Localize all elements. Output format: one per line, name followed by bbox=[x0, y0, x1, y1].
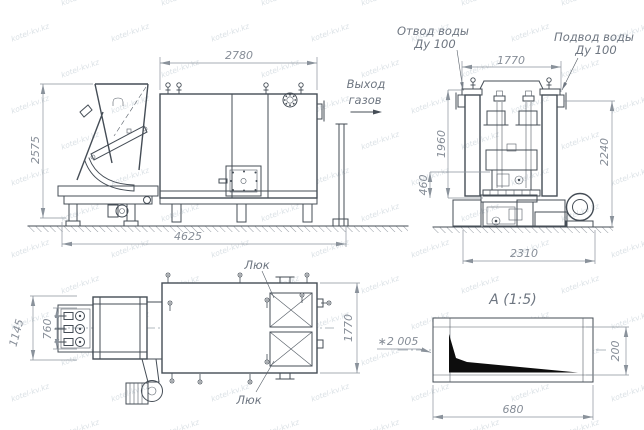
boiler-body-front bbox=[456, 78, 566, 196]
technical-drawing: 2780 bbox=[0, 0, 644, 430]
dim-460: 460 bbox=[417, 172, 490, 198]
dim-2240: 2240 bbox=[564, 101, 615, 226]
dim-1145-text: 1145 bbox=[7, 318, 27, 348]
side-view: 2780 bbox=[28, 49, 408, 247]
feeder-shafts bbox=[55, 312, 85, 347]
fan-blower bbox=[535, 194, 594, 228]
water-inlet-text-1: Подвод воды bbox=[554, 30, 634, 44]
dim-1770-front-text: 1770 bbox=[497, 54, 525, 67]
dim-1770-front: 1770 bbox=[462, 54, 561, 92]
plan-view: Люк Люк bbox=[7, 258, 360, 407]
dim-460-text: 460 bbox=[417, 175, 430, 196]
gas-flow-arrow-icon bbox=[351, 110, 382, 115]
dim-2310-text: 2310 bbox=[510, 247, 538, 260]
water-outlet-text-1: Отвод воды bbox=[397, 24, 469, 38]
dim-200-text: 200 bbox=[609, 341, 622, 362]
feeder-plan bbox=[55, 297, 163, 404]
water-inlet-label: Подвод воды Ду 100 bbox=[554, 30, 634, 90]
front-view: Отвод воды Ду 100 Подвод воды Ду 100 177… bbox=[397, 24, 634, 264]
dim-2780: 2780 bbox=[160, 49, 317, 90]
dim-4625-text: 4625 bbox=[174, 230, 202, 243]
dim-680-text: 680 bbox=[503, 403, 524, 416]
dim-2780-text: 2780 bbox=[225, 49, 253, 62]
dim-1960-text: 1960 bbox=[435, 130, 448, 158]
dim-2310: 2310 bbox=[463, 230, 595, 264]
ground-front bbox=[433, 227, 613, 233]
foundation-front bbox=[453, 195, 565, 226]
dim-2575: 2575 bbox=[29, 84, 93, 218]
feeder-frame bbox=[58, 186, 158, 226]
drawing-canvas: kotel-kv.kzkotel-kv.kzkotel-kv.kzkotel-k… bbox=[0, 0, 644, 430]
water-outlet-text-2: Ду 100 bbox=[413, 37, 455, 51]
ground-side bbox=[28, 226, 408, 232]
dim-2005-text: ∗2 005 bbox=[378, 335, 419, 348]
dim-2575-text: 2575 bbox=[29, 136, 42, 164]
gas-duct bbox=[317, 101, 348, 226]
gas-outlet-text-1: Выход bbox=[347, 77, 386, 91]
dim-1960: 1960 bbox=[435, 90, 483, 198]
gas-outlet-label: Выход газов bbox=[347, 77, 386, 115]
fuel-hopper bbox=[77, 84, 148, 191]
hatch-bottom-text: Люк bbox=[235, 393, 261, 407]
top-valves bbox=[166, 83, 304, 94]
water-inlet-text-2: Ду 100 bbox=[574, 43, 616, 57]
hatch-top-text: Люк bbox=[243, 258, 269, 272]
dim-2240-text: 2240 bbox=[598, 138, 611, 166]
boiler-body-side bbox=[160, 94, 317, 222]
detail-title: А (1:5) bbox=[488, 292, 536, 308]
dim-1770-plan-text: 1770 bbox=[342, 314, 355, 342]
dim-760-text: 760 bbox=[41, 319, 54, 340]
gas-outlet-text-2: газов bbox=[348, 93, 381, 107]
dim-680: 680 bbox=[433, 385, 593, 420]
water-outlet-label: Отвод воды Ду 100 bbox=[397, 24, 469, 90]
detail-a-view: А (1:5) ∗2 005 680 200 bbox=[377, 292, 629, 420]
